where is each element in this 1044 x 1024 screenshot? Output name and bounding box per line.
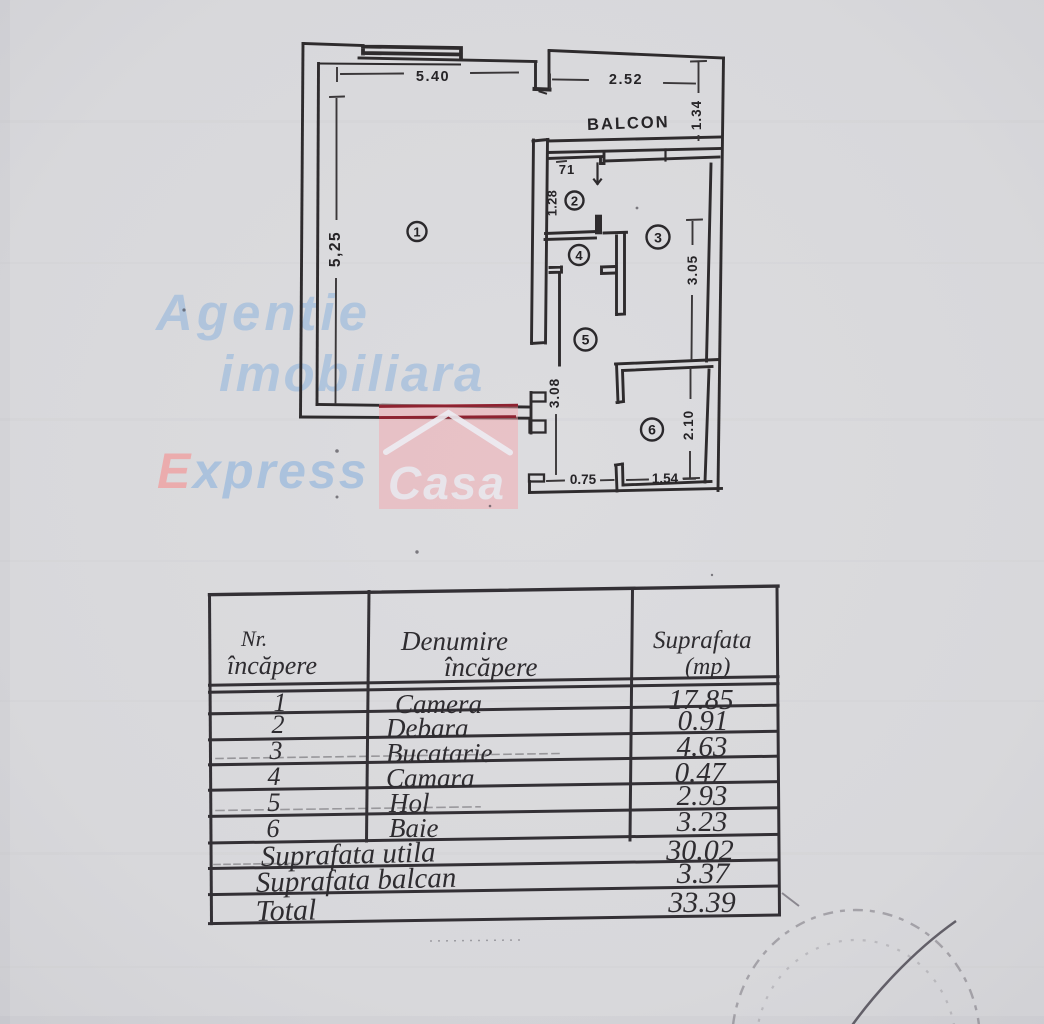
svg-text:încăpere: încăpere <box>227 651 317 680</box>
svg-text:Agentie: Agentie <box>154 284 371 341</box>
svg-text:5: 5 <box>582 332 590 348</box>
svg-text:2.10: 2.10 <box>681 410 696 440</box>
svg-text:3: 3 <box>269 736 283 765</box>
svg-text:3: 3 <box>654 230 662 246</box>
svg-text:1.54: 1.54 <box>652 471 679 486</box>
svg-text:0.75: 0.75 <box>570 472 597 487</box>
svg-text:3.05: 3.05 <box>685 255 700 285</box>
svg-text:Suprafata: Suprafata <box>653 627 752 654</box>
svg-text:6: 6 <box>267 814 280 843</box>
svg-text:1: 1 <box>413 225 420 240</box>
svg-text:2: 2 <box>272 710 285 739</box>
svg-text:4: 4 <box>575 248 583 263</box>
svg-text:6: 6 <box>648 422 656 438</box>
svg-text:1.34: 1.34 <box>689 100 704 130</box>
svg-text:71: 71 <box>559 162 575 177</box>
svg-text:3.08: 3.08 <box>547 378 562 408</box>
svg-text:5.40: 5.40 <box>416 69 450 85</box>
svg-text:5,25: 5,25 <box>327 231 344 267</box>
svg-text:2: 2 <box>571 194 578 209</box>
svg-text:BALCON: BALCON <box>587 113 670 134</box>
svg-text:33.39: 33.39 <box>667 886 736 919</box>
svg-text:(mp): (mp) <box>685 654 730 680</box>
svg-text:Casa: Casa <box>388 457 506 509</box>
svg-text:Nr.: Nr. <box>240 626 267 651</box>
svg-text:4: 4 <box>268 762 281 791</box>
svg-text:încăpere: încăpere <box>444 652 537 682</box>
svg-text:Total: Total <box>255 893 316 928</box>
svg-text:5: 5 <box>268 788 281 817</box>
svg-text:2.52: 2.52 <box>609 72 643 88</box>
svg-text:1.28: 1.28 <box>546 190 560 216</box>
svg-text:imobiliara: imobiliara <box>219 345 485 402</box>
